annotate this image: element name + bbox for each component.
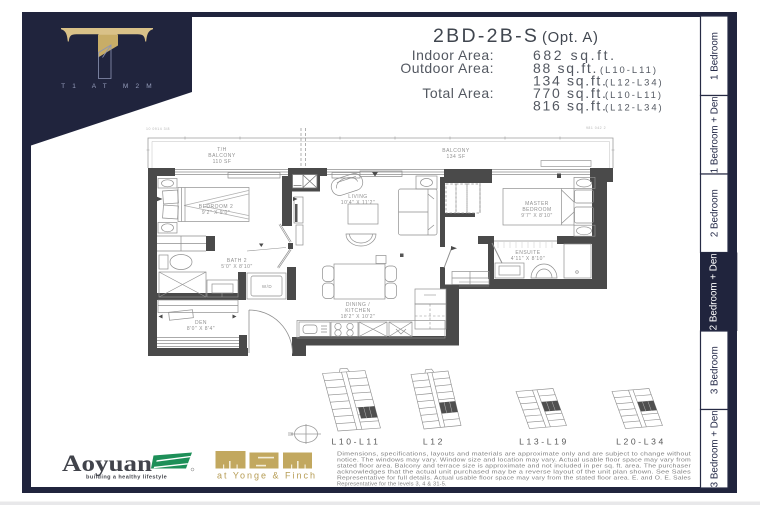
svg-text:9'7" X 8'10": 9'7" X 8'10" [521,213,552,219]
svg-text:981 042 2: 981 042 2 [586,126,606,130]
svg-text:2BD-2B-S: 2BD-2B-S [433,25,539,47]
svg-text:(L10-L11): (L10-L11) [605,89,663,100]
svg-text:134 SF: 134 SF [446,154,465,160]
svg-text:1 Bedroom: 1 Bedroom [710,32,721,80]
svg-text:Total Area:: Total Area: [422,85,494,101]
svg-text:(L12-L34): (L12-L34) [605,102,664,113]
svg-text:10'4" X 11'2": 10'4" X 11'2" [341,200,375,206]
svg-text:Aoyuan: Aoyuan [62,451,152,476]
svg-text:4'11" X 8'10": 4'11" X 8'10" [511,256,545,262]
svg-text:(Opt. A): (Opt. A) [542,30,599,46]
svg-text:816 sq.ft.: 816 sq.ft. [533,98,608,114]
svg-text:Outdoor Area:: Outdoor Area: [400,60,494,76]
svg-text:W/D: W/D [262,284,272,289]
svg-text:3 Bedroom: 3 Bedroom [710,346,721,394]
svg-text:1 Bedroom + Den: 1 Bedroom + Den [710,96,721,173]
svg-text:L12: L12 [423,437,445,447]
svg-text:(L10-L11): (L10-L11) [600,64,658,75]
svg-text:(L12-L34): (L12-L34) [605,76,664,87]
svg-text:L20-L34: L20-L34 [616,437,666,447]
svg-text:8'0" X 8'4": 8'0" X 8'4" [187,326,215,332]
svg-text:110 SF: 110 SF [213,159,232,165]
svg-text:5'0" X 8'10": 5'0" X 8'10" [221,264,252,270]
svg-text:building a healthy lifestyle: building a healthy lifestyle [86,475,167,481]
svg-text:2 Bedroom + Den: 2 Bedroom + Den [709,253,720,330]
svg-text:at Yonge & Finch: at Yonge & Finch [217,471,317,481]
svg-text:10 0914 3/8: 10 0914 3/8 [146,127,170,131]
svg-text:9'2" X 9'0": 9'2" X 9'0" [202,210,230,216]
svg-text:2 Bedroom: 2 Bedroom [710,189,721,237]
svg-text:3 Bedroom + Den: 3 Bedroom + Den [710,410,721,487]
svg-text:Representative for the levels: Representative for the levels 3, 4 & 31-… [337,482,447,488]
svg-text:L10-L11: L10-L11 [331,437,380,447]
svg-text:T1 AT M2M: T1 AT M2M [61,83,159,90]
svg-text:L13-L19: L13-L19 [519,437,569,447]
svg-text:18'2" X 10'2": 18'2" X 10'2" [341,314,376,320]
